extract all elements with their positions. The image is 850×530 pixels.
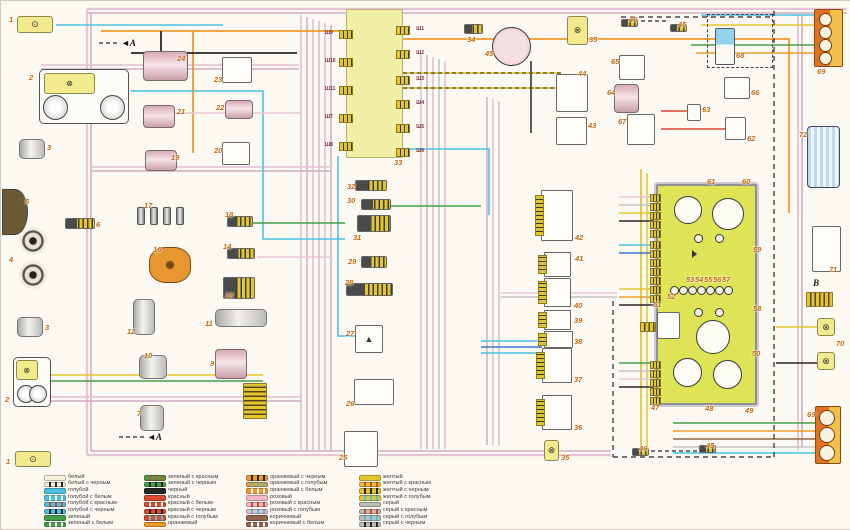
side-marker-lamp-icon: ⊙ bbox=[18, 17, 52, 32]
hazard-switch: ▲ bbox=[355, 325, 383, 353]
legend-color-swatch bbox=[359, 488, 381, 494]
legend-color-swatch bbox=[359, 509, 381, 515]
connector-pin bbox=[650, 379, 661, 387]
gauge-icon bbox=[712, 198, 744, 230]
ignition-switch bbox=[542, 348, 572, 383]
legend-color-name: зеленый с красным bbox=[168, 474, 218, 480]
gauge-icon bbox=[696, 320, 730, 354]
legend-color-swatch bbox=[44, 495, 66, 501]
connector-pin bbox=[650, 194, 661, 202]
connector-pin bbox=[339, 142, 353, 151]
switch bbox=[544, 331, 573, 348]
connector-pin bbox=[650, 277, 661, 285]
component-number: 34 bbox=[467, 35, 475, 44]
connector-label: Ш11 bbox=[325, 86, 335, 92]
relay bbox=[657, 312, 680, 339]
component-number: 20 bbox=[214, 146, 222, 155]
interior-lamp-icon: ⊗ bbox=[568, 17, 587, 44]
spark-plug-icon bbox=[176, 207, 184, 225]
interior-lamp-icon: ⊗ bbox=[545, 441, 558, 460]
component-number: 46 bbox=[629, 15, 637, 24]
component-number: 43 bbox=[588, 121, 596, 130]
connector-pin bbox=[650, 370, 661, 378]
connector-pin bbox=[650, 388, 661, 396]
legend-color-name: коричневый bbox=[270, 514, 301, 520]
legend-color-swatch bbox=[44, 522, 66, 528]
connector-label: Ш9 bbox=[325, 30, 333, 36]
component-number: 54 bbox=[695, 275, 703, 284]
connector bbox=[806, 292, 833, 307]
component-number: 44 bbox=[578, 69, 586, 78]
relay bbox=[222, 57, 252, 83]
component-number: 1 bbox=[6, 457, 10, 466]
connector-pin bbox=[339, 114, 353, 123]
component-number: 60 bbox=[742, 177, 750, 186]
component-number: 24 bbox=[177, 54, 185, 63]
side-marker-lamp: ⊙ bbox=[15, 451, 51, 467]
legend-color-swatch bbox=[144, 482, 166, 488]
legend-color-name: желтый с красным bbox=[383, 480, 431, 486]
component-number: 69 bbox=[807, 410, 815, 419]
legend-color-name: голубой с красным bbox=[68, 500, 117, 506]
license-plate-lamp: ⊗ bbox=[817, 352, 835, 370]
component-number: 71 bbox=[829, 265, 837, 274]
legend-color-name: голубой с черным bbox=[68, 507, 114, 513]
indicator-lamp-icon bbox=[694, 308, 703, 317]
component-number: 25 bbox=[339, 453, 347, 462]
mounting-block: 33 Ш9Ш10Ш11Ш7Ш8Ш1Ш2Ш3Ш4Ш5Ш6 bbox=[346, 9, 403, 158]
sensor bbox=[140, 405, 164, 431]
component-number: 21 bbox=[177, 107, 185, 116]
connector-pin bbox=[650, 212, 661, 220]
legend-color-name: оранжевый bbox=[168, 520, 197, 526]
switch bbox=[725, 117, 746, 140]
legend-color-swatch bbox=[44, 482, 66, 488]
component-number: 72 bbox=[799, 130, 807, 139]
resistor bbox=[687, 104, 701, 121]
electric-motor bbox=[225, 100, 253, 119]
switch bbox=[724, 77, 750, 99]
voltage-regulator bbox=[344, 431, 378, 467]
connector-pin bbox=[339, 30, 353, 39]
legend-color-swatch bbox=[44, 502, 66, 508]
legend-color-name: желтый с черным bbox=[383, 487, 429, 493]
tail-lamp-bulb-icon bbox=[819, 427, 835, 443]
connector-pin bbox=[396, 26, 410, 35]
spark-plug-icon bbox=[163, 207, 171, 225]
component-number: 48 bbox=[705, 404, 713, 413]
component-number: 31 bbox=[353, 233, 361, 242]
headlight-bulb-icon bbox=[43, 95, 68, 120]
legend-color-name: желтый bbox=[383, 474, 403, 480]
license-plate-lamp-icon: ⊗ bbox=[818, 319, 834, 335]
component-number: 23 bbox=[214, 75, 222, 84]
legend-color-swatch bbox=[44, 488, 66, 494]
legend-color-name: белый bbox=[68, 474, 84, 480]
component-number: 33 bbox=[394, 158, 402, 167]
indicator-lamp-icon bbox=[715, 234, 724, 243]
component-number: 61 bbox=[707, 177, 715, 186]
connector-pin bbox=[650, 250, 661, 258]
legend-color-name: серый bbox=[383, 500, 399, 506]
underhood-lamp bbox=[492, 27, 531, 66]
component-number: 47 bbox=[651, 403, 659, 412]
legend-color-name: зеленый с черным bbox=[168, 480, 216, 486]
connector-pin bbox=[396, 148, 410, 157]
component-number: 46 bbox=[639, 444, 647, 453]
legend-color-name: красный bbox=[168, 494, 190, 500]
indicator-lamp-icon bbox=[679, 286, 688, 295]
legend-color-name: розовый с красным bbox=[270, 500, 320, 506]
connector bbox=[243, 383, 267, 419]
component-number: 45 bbox=[678, 20, 686, 29]
headlight-lamp-icon: ⊗ bbox=[16, 360, 38, 379]
legend-color-swatch bbox=[246, 475, 268, 481]
switch bbox=[627, 114, 655, 145]
connector-label: Ш3 bbox=[416, 76, 424, 82]
legend-color-swatch bbox=[44, 509, 66, 515]
heated-rear-window bbox=[807, 126, 840, 188]
wire-color-legend: белыйбелый с чернымголубойголубой с белы… bbox=[1, 469, 850, 529]
indicator-lamp-icon bbox=[715, 308, 724, 317]
component-number: 57 bbox=[722, 275, 730, 284]
component-number: 64 bbox=[607, 88, 615, 97]
headlight-bulb-icon bbox=[29, 385, 47, 403]
legend-color-swatch bbox=[44, 475, 66, 481]
legend-color-swatch bbox=[144, 509, 166, 515]
connector-label: Ш5 bbox=[416, 124, 424, 130]
component-number: 52 bbox=[667, 292, 675, 301]
connector-pin bbox=[650, 203, 661, 211]
connector-label: Ш10 bbox=[325, 58, 336, 64]
connector-label: Ш2 bbox=[416, 50, 424, 56]
harness-continuation-marker: В bbox=[813, 278, 819, 288]
tail-lamp-bulb-icon bbox=[819, 52, 832, 65]
connector-label: Ш6 bbox=[416, 148, 424, 154]
headlight-unit: ⊗ bbox=[13, 357, 51, 407]
sensor bbox=[357, 215, 391, 232]
legend-color-name: коричневый с белым bbox=[270, 520, 324, 526]
component-number: 41 bbox=[575, 254, 583, 263]
legend-color-name: оранжевый с черным bbox=[270, 474, 325, 480]
relay bbox=[354, 379, 394, 405]
tail-lamp-bulb-icon bbox=[819, 13, 832, 26]
component-number: 27 bbox=[346, 329, 354, 338]
legend-color-swatch bbox=[246, 482, 268, 488]
legend-color-name: голубой с белым bbox=[68, 494, 112, 500]
headlight-bulb-icon bbox=[100, 95, 125, 120]
component-number: 5 bbox=[25, 197, 29, 206]
legend-color-swatch bbox=[44, 515, 66, 521]
component-number: 58 bbox=[753, 304, 761, 313]
legend-color-name: серый с красным bbox=[383, 507, 428, 513]
component-number: 28 bbox=[345, 278, 353, 287]
legend-color-swatch bbox=[144, 502, 166, 508]
legend-color-swatch bbox=[359, 502, 381, 508]
connector-pin bbox=[650, 221, 661, 229]
component-number: 14 bbox=[223, 242, 231, 251]
horn bbox=[19, 261, 47, 289]
switch bbox=[544, 310, 571, 330]
component-number: 63 bbox=[702, 105, 710, 114]
tail-lamp-bulb-icon bbox=[819, 26, 832, 39]
component-number: 51 bbox=[653, 300, 661, 309]
sensor bbox=[464, 24, 483, 34]
connector-label: Ш1 bbox=[416, 26, 424, 32]
gauge-icon bbox=[673, 358, 702, 387]
connector-pin bbox=[339, 86, 353, 95]
horn bbox=[19, 227, 47, 255]
harness-continuation-marker: ◄A bbox=[147, 432, 162, 442]
component-number: 59 bbox=[753, 245, 761, 254]
component-number: 67 bbox=[618, 117, 626, 126]
legend-color-name: черный bbox=[168, 487, 187, 493]
component-number: 68 bbox=[736, 51, 744, 60]
sensor bbox=[355, 180, 387, 191]
component-number: 2 bbox=[5, 395, 9, 404]
legend-color-name: розовый с голубым bbox=[270, 507, 320, 513]
washer-pump bbox=[215, 309, 267, 327]
ignition-coil bbox=[133, 299, 155, 335]
legend-color-name: зеленый bbox=[68, 514, 90, 520]
legend-color-swatch bbox=[144, 522, 166, 528]
component-number: 7 bbox=[137, 409, 141, 418]
connector-label: Ш8 bbox=[325, 142, 333, 148]
component-number: 1 bbox=[9, 15, 13, 24]
headlight-lamp-icon: ⊗ bbox=[44, 73, 94, 94]
connector-pin bbox=[650, 230, 661, 238]
component-number: 13 bbox=[225, 291, 233, 300]
component-number: 32 bbox=[347, 182, 355, 191]
component-number: 66 bbox=[751, 88, 759, 97]
component-number: 69 bbox=[817, 67, 825, 76]
wiper-motor bbox=[215, 349, 247, 379]
sensor bbox=[361, 199, 391, 210]
indicator-lamp-icon bbox=[688, 286, 697, 295]
connector-pin bbox=[396, 50, 410, 59]
connector-pin bbox=[650, 361, 661, 369]
cylinder-component bbox=[17, 317, 43, 337]
component-number: 16 bbox=[153, 245, 161, 254]
harness-continuation-marker: ◄A bbox=[121, 38, 136, 48]
component-number: 29 bbox=[348, 257, 356, 266]
tail-lamp-unit bbox=[815, 406, 841, 464]
legend-color-swatch bbox=[144, 495, 166, 501]
tail-lamp-bulb-icon bbox=[819, 445, 835, 461]
relay bbox=[143, 105, 175, 128]
legend-color-swatch bbox=[144, 475, 166, 481]
component-number: 39 bbox=[574, 316, 582, 325]
component-number: 53 bbox=[686, 275, 694, 284]
component-number: 56 bbox=[713, 275, 721, 284]
component-number: 3 bbox=[47, 143, 51, 152]
legend-color-swatch bbox=[359, 495, 381, 501]
legend-color-name: голубой bbox=[68, 487, 88, 493]
hazard-switch-icon: ▲ bbox=[356, 326, 382, 352]
connector-pin bbox=[650, 259, 661, 267]
component-number: 6 bbox=[96, 220, 100, 229]
component-number: 40 bbox=[574, 301, 582, 310]
component-number: 62 bbox=[747, 134, 755, 143]
fan-motor bbox=[2, 189, 28, 235]
indicator-arrow-icon bbox=[692, 250, 697, 258]
tail-lamp-bulb-icon bbox=[819, 410, 835, 426]
indicator-lamp-icon bbox=[715, 286, 724, 295]
sensor bbox=[361, 256, 387, 268]
connector-pin bbox=[396, 124, 410, 133]
component-number: 18 bbox=[225, 210, 233, 219]
legend-color-swatch bbox=[359, 475, 381, 481]
tail-lamp-bulb-icon bbox=[819, 39, 832, 52]
legend-color-name: оранжевый с голубым bbox=[270, 480, 327, 486]
connector-pin bbox=[396, 100, 410, 109]
indicator-lamp-icon bbox=[697, 286, 706, 295]
component-number: 11 bbox=[205, 319, 213, 328]
legend-color-swatch bbox=[359, 515, 381, 521]
component-number: 12 bbox=[127, 327, 135, 336]
gauge-icon bbox=[713, 360, 742, 389]
component-number: 17 bbox=[144, 201, 152, 210]
component-number: 22 bbox=[216, 103, 224, 112]
legend-color-name: зеленый с белым bbox=[68, 520, 113, 526]
sensor bbox=[65, 218, 95, 229]
heater-motor bbox=[614, 84, 639, 113]
component-number: 30 bbox=[347, 196, 355, 205]
component-number: 45 bbox=[485, 49, 493, 58]
legend-color-swatch bbox=[246, 515, 268, 521]
interior-lamp: ⊗ bbox=[544, 440, 559, 461]
component-number: 50 bbox=[752, 349, 760, 358]
legend-color-name: красный с черным bbox=[168, 507, 216, 513]
headlight-unit: ⊗ bbox=[39, 69, 129, 124]
component-number: 35 bbox=[561, 453, 569, 462]
component-number: 19 bbox=[171, 153, 179, 162]
component-number: 26 bbox=[346, 399, 354, 408]
legend-color-name: серый с черным bbox=[383, 520, 425, 526]
component-number: 70 bbox=[836, 339, 844, 348]
wiring-diagram: 33 Ш9Ш10Ш11Ш7Ш8Ш1Ш2Ш3Ш4Ш5Ш6 белыйбелый с… bbox=[0, 0, 850, 530]
component-number: 36 bbox=[574, 423, 582, 432]
connector-pin bbox=[650, 268, 661, 276]
legend-color-name: желтый с голубым bbox=[383, 494, 431, 500]
legend-color-swatch bbox=[246, 495, 268, 501]
cylinder-component bbox=[19, 139, 45, 159]
side-marker-lamp-icon: ⊙ bbox=[16, 452, 50, 466]
component-number: 2 bbox=[29, 73, 33, 82]
component-number: 65 bbox=[611, 57, 619, 66]
relay bbox=[619, 55, 645, 80]
component-number: 38 bbox=[574, 337, 582, 346]
legend-color-name: белый с черным bbox=[68, 480, 110, 486]
legend-color-name: серый с голубым bbox=[383, 514, 427, 520]
component-number: 10 bbox=[144, 351, 152, 360]
connector-pin bbox=[650, 241, 661, 249]
legend-color-name: розовый bbox=[270, 494, 292, 500]
switch bbox=[544, 278, 571, 307]
side-marker-lamp: ⊙ bbox=[17, 16, 53, 33]
gauge-icon bbox=[674, 196, 702, 224]
legend-color-swatch bbox=[246, 502, 268, 508]
component-number: 35 bbox=[589, 35, 597, 44]
indicator-lamp-icon bbox=[706, 286, 715, 295]
indicator-lamp-icon bbox=[724, 286, 733, 295]
legend-color-swatch bbox=[144, 488, 166, 494]
interior-lamp: ⊗ bbox=[567, 16, 588, 45]
component-number: 42 bbox=[575, 233, 583, 242]
legend-color-swatch bbox=[246, 509, 268, 515]
resistor bbox=[640, 322, 656, 332]
steering-column-switch bbox=[541, 190, 573, 241]
legend-color-swatch bbox=[359, 482, 381, 488]
relay bbox=[556, 117, 587, 145]
license-plate-lamp: ⊗ bbox=[817, 318, 835, 336]
component-number: 55 bbox=[704, 275, 712, 284]
wire bbox=[403, 149, 489, 215]
component-number: 4 bbox=[9, 255, 13, 264]
license-plate-lamp-icon: ⊗ bbox=[818, 353, 834, 369]
legend-color-name: оранжевый с белым bbox=[270, 487, 323, 493]
component-number: 45 bbox=[706, 441, 714, 450]
connector-pin bbox=[339, 58, 353, 67]
connector-label: Ш4 bbox=[416, 100, 424, 106]
legend-color-name: красный с белым bbox=[168, 500, 213, 506]
indicator-lamp-icon bbox=[694, 234, 703, 243]
component-number: 49 bbox=[745, 406, 753, 415]
component-number: 9 bbox=[210, 359, 214, 368]
legend-color-swatch bbox=[144, 515, 166, 521]
connector-pin bbox=[396, 76, 410, 85]
legend-color-swatch bbox=[246, 488, 268, 494]
component-number: 37 bbox=[574, 375, 582, 384]
legend-color-name: красный с голубым bbox=[168, 514, 218, 520]
tail-lamp-unit bbox=[814, 9, 843, 67]
connector-pin bbox=[650, 286, 661, 294]
connector-label: Ш7 bbox=[325, 114, 333, 120]
legend-color-swatch bbox=[246, 522, 268, 528]
relay bbox=[222, 142, 250, 165]
legend-color-swatch bbox=[359, 522, 381, 528]
component-number: 3 bbox=[45, 323, 49, 332]
switch bbox=[542, 395, 572, 430]
switch bbox=[544, 252, 571, 277]
relay bbox=[556, 74, 588, 112]
